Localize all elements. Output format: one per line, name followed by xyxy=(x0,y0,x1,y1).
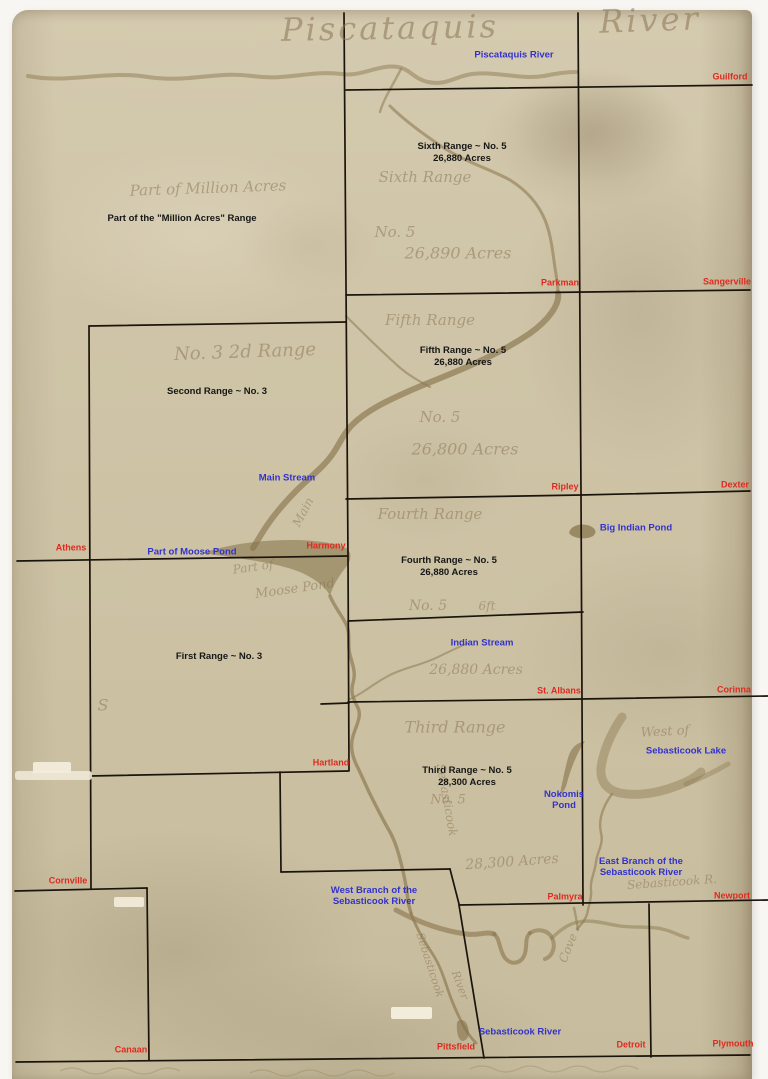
town-label-pittsfield: Pittsfield xyxy=(437,1042,475,1053)
town-label-parkman: Parkman xyxy=(541,278,579,289)
range-label-fifth: Fifth Range ~ No. 5 26,880 Acres xyxy=(420,345,506,369)
town-label-newport: Newport xyxy=(714,891,750,902)
town-label-athens: Athens xyxy=(56,543,87,554)
range-acres: 26,880 Acres xyxy=(420,357,506,369)
range-name: Third Range ~ No. 5 xyxy=(422,765,511,777)
town-label-cornville: Cornville xyxy=(49,876,88,887)
map-linework-layer xyxy=(0,0,768,1079)
range-name: Part of the "Million Acres" Range xyxy=(107,213,256,225)
water-label-piscataquis-river: Piscataquis River xyxy=(474,50,553,61)
script-fourth-range: Fourth Range xyxy=(378,505,483,523)
bottom-scribbles-group xyxy=(60,1066,638,1076)
script-third-range: Third Range xyxy=(404,718,505,737)
range-label-third: Third Range ~ No. 5 28,300 Acres xyxy=(422,765,511,789)
boundary-third-west-diagonal xyxy=(450,869,459,904)
town-label-harmony: Harmony xyxy=(306,541,345,552)
small-pond-shape xyxy=(457,1020,469,1041)
moose-outlet-river xyxy=(330,596,411,913)
water-label-moose-pond: Part of Moose Pond xyxy=(147,547,236,558)
boundary-guilford-south xyxy=(346,85,752,90)
script-west-of: West of xyxy=(640,723,689,741)
range-label-fourth: Fourth Range ~ No. 5 26,880 Acres xyxy=(401,555,497,579)
town-label-hartland: Hartland xyxy=(313,758,350,769)
script-fourth-no5: No. 5 xyxy=(409,598,447,614)
script-sixth-acres: 26,890 Acres xyxy=(405,244,512,263)
range-label-second: Second Range ~ No. 3 xyxy=(167,386,267,398)
range-name: Fifth Range ~ No. 5 xyxy=(420,345,506,357)
boundary-stub-west xyxy=(321,703,349,704)
town-label-guilford: Guilford xyxy=(713,72,748,83)
water-label-nokomis-pond: Nokomis Pond xyxy=(540,789,588,811)
range-name: First Range ~ No. 3 xyxy=(176,651,262,663)
boundary-cornville-south xyxy=(15,888,147,891)
script-sixth-no5: No. 5 xyxy=(375,223,416,241)
script-sixth-range: Sixth Range xyxy=(379,168,472,186)
range-label-million-acres: Part of the "Million Acres" Range xyxy=(107,213,256,225)
water-label-sebasticook-river: Sebasticook River xyxy=(479,1027,561,1038)
patch-2 xyxy=(114,897,144,907)
range-label-sixth: Sixth Range ~ No. 5 26,880 Acres xyxy=(418,141,507,165)
town-label-detroit: Detroit xyxy=(617,1040,646,1051)
script-river: River xyxy=(599,0,702,41)
boundary-vertical-far-west xyxy=(89,326,91,889)
boundary-third-west-vertical xyxy=(280,772,281,872)
town-label-canaan: Canaan xyxy=(115,1045,148,1056)
water-label-big-indian-pond: Big Indian Pond xyxy=(600,523,672,534)
big-indian-pond-shape xyxy=(569,524,595,538)
script-fourth-acres: 26,880 Acres xyxy=(429,662,523,678)
water-label-sebasticook-lake: Sebasticook Lake xyxy=(646,746,726,757)
water-label-indian-stream: Indian Stream xyxy=(451,638,514,649)
boundary-vertical-west-column xyxy=(344,13,349,771)
town-label-plymouth: Plymouth xyxy=(712,1039,753,1050)
patch-3 xyxy=(391,1007,432,1019)
script-fourth-6ft: 6ft xyxy=(479,599,496,613)
boundary-canaan-east-vertical xyxy=(147,888,149,1060)
range-acres: 26,880 Acres xyxy=(418,153,507,165)
range-label-first: First Range ~ No. 3 xyxy=(176,651,262,663)
ponds-group xyxy=(203,524,595,1041)
range-name: Sixth Range ~ No. 5 xyxy=(418,141,507,153)
range-acres: 28,300 Acres xyxy=(422,777,511,789)
water-label-main-stream: Main Stream xyxy=(259,473,316,484)
boundary-fourth-mid xyxy=(348,612,583,621)
town-label-st-albans: St. Albans xyxy=(537,686,581,697)
range-acres: 26,880 Acres xyxy=(401,567,497,579)
boundary-fourth-north xyxy=(346,491,750,499)
town-label-dexter: Dexter xyxy=(721,480,749,491)
town-label-sangerville: Sangerville xyxy=(703,277,751,288)
sebasticook-river-loop1 xyxy=(494,933,530,963)
patch-1 xyxy=(33,762,71,773)
water-label-east-branch: East Branch of the Sebasticook River xyxy=(593,856,689,878)
scanned-survey-map: Piscataquis River Part of Million Acres … xyxy=(0,0,768,1079)
script-s-mark: S xyxy=(98,696,109,715)
town-label-ripley: Ripley xyxy=(551,482,578,493)
script-piscataquis: Piscataquis xyxy=(281,7,500,49)
boundary-stalbans-corinna xyxy=(348,696,768,702)
piscataquis-river-drawing xyxy=(28,67,576,83)
east-branch-join xyxy=(574,908,578,930)
sebasticook-river-loop2 xyxy=(530,930,554,959)
boundary-third-west-horizontal xyxy=(281,869,450,872)
boundary-bottom xyxy=(16,1055,750,1062)
boundary-sixth-south xyxy=(346,290,750,295)
script-fifth-no5: No. 5 xyxy=(420,408,461,426)
script-fifth-range: Fifth Range xyxy=(385,311,475,329)
range-name: Second Range ~ No. 3 xyxy=(167,386,267,398)
water-label-west-branch: West Branch of the Sebasticook River xyxy=(326,885,422,907)
boundary-vertical-east-column xyxy=(578,13,583,905)
range-name: Fourth Range ~ No. 5 xyxy=(401,555,497,567)
town-label-palmyra: Palmyra xyxy=(547,892,582,903)
sixth-range-stream xyxy=(390,106,558,293)
script-fifth-acres: 26,800 Acres xyxy=(412,440,519,459)
town-label-corinna: Corinna xyxy=(717,685,751,696)
boundary-first-south xyxy=(90,771,348,776)
boundary-second-north xyxy=(89,322,346,326)
